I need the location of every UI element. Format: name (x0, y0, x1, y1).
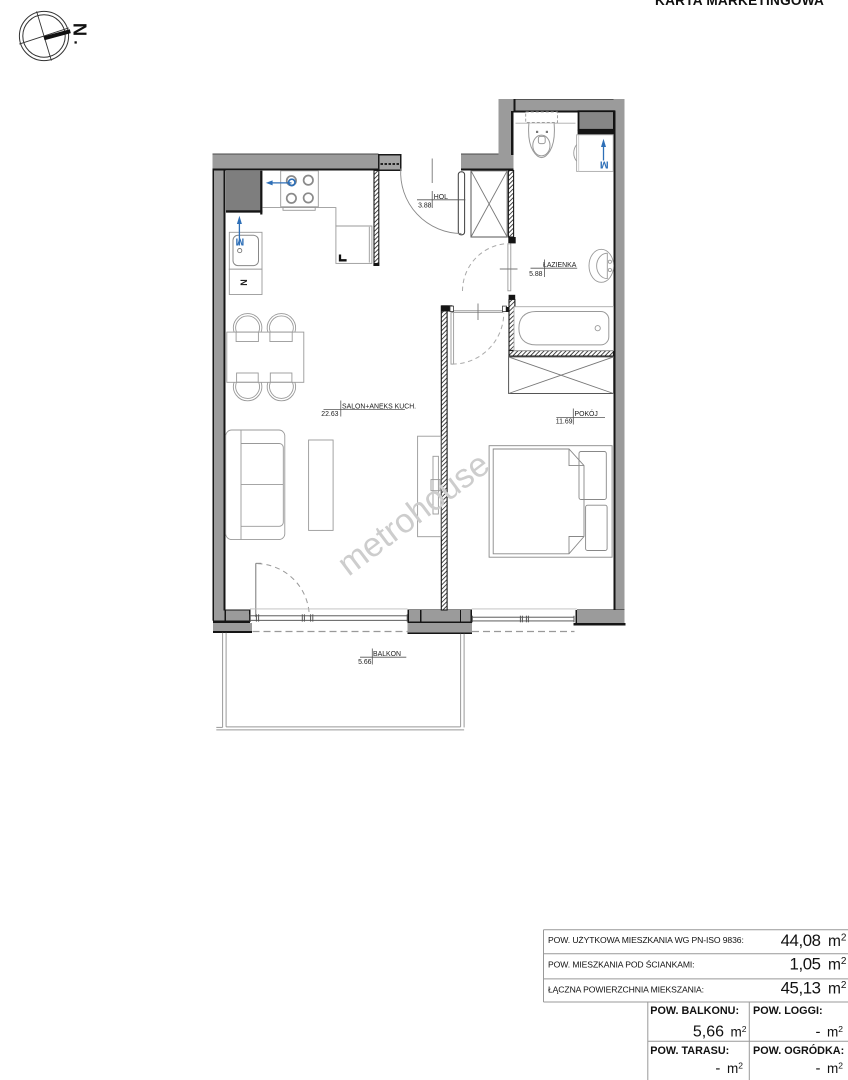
svg-text:45,13: 45,13 (781, 978, 821, 997)
svg-text:5,66: 5,66 (693, 1024, 724, 1041)
svg-text:44,08: 44,08 (781, 931, 821, 950)
svg-text:5.66: 5.66 (358, 659, 372, 666)
svg-text:N: N (238, 279, 248, 286)
svg-text:-: - (715, 1060, 720, 1077)
svg-text:POW. LOGGI:: POW. LOGGI: (753, 1005, 823, 1017)
svg-text:11.69: 11.69 (556, 418, 573, 425)
svg-text:-: - (816, 1060, 821, 1077)
svg-text:POW. MIESZKANIA POD ŚCIANKAMI:: POW. MIESZKANIA POD ŚCIANKAMI: (548, 958, 694, 969)
svg-text:POW. UŻYTKOWA MIESZKANIA WG PN: POW. UŻYTKOWA MIESZKANIA WG PN-ISO 9836: (548, 935, 744, 945)
svg-text:KARTA MARKETINGOWA: KARTA MARKETINGOWA (655, 0, 824, 8)
svg-text:BALKON: BALKON (373, 651, 401, 658)
svg-text:3.88: 3.88 (418, 202, 432, 209)
svg-text:M: M (235, 236, 244, 248)
svg-text:22.63: 22.63 (321, 411, 338, 418)
svg-text:5.88: 5.88 (529, 271, 543, 278)
svg-text:N: N (69, 23, 90, 36)
svg-text:-: - (816, 1024, 821, 1041)
svg-text:M: M (600, 158, 609, 170)
svg-text:1,05: 1,05 (790, 954, 821, 973)
svg-text:POW. OGRÓDKA:: POW. OGRÓDKA: (753, 1044, 844, 1057)
svg-text:POKÓJ: POKÓJ (575, 409, 598, 418)
svg-text:POW. BALKONU:: POW. BALKONU: (650, 1005, 739, 1017)
svg-text:POW. TARASU:: POW. TARASU: (650, 1045, 729, 1057)
svg-text:ŁĄCZNA POWIERZCHNIA MIEKSZANIA: ŁĄCZNA POWIERZCHNIA MIEKSZANIA: (548, 984, 704, 994)
